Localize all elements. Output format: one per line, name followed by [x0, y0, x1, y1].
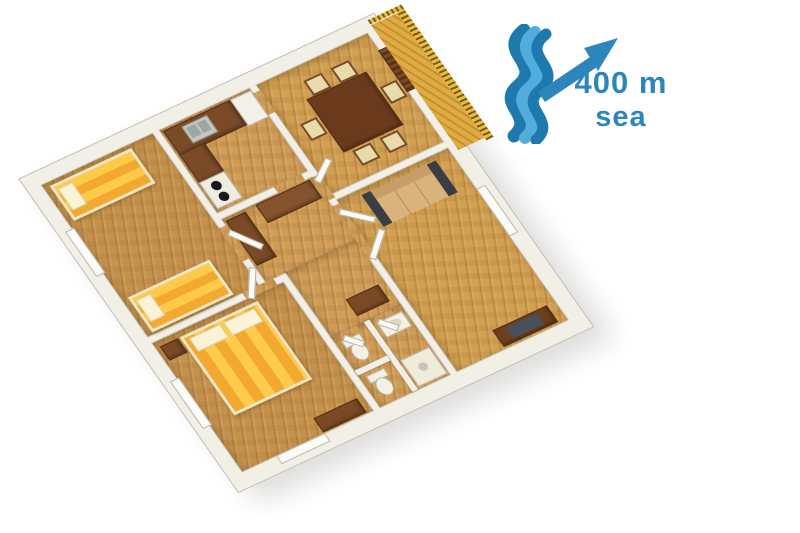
distance-place: sea	[558, 101, 684, 133]
sea-distance-label: 400 m sea	[558, 66, 684, 133]
door-leaf	[248, 267, 257, 299]
burner	[217, 190, 232, 203]
burner	[209, 179, 224, 192]
distance-value: 400 m	[558, 66, 684, 101]
